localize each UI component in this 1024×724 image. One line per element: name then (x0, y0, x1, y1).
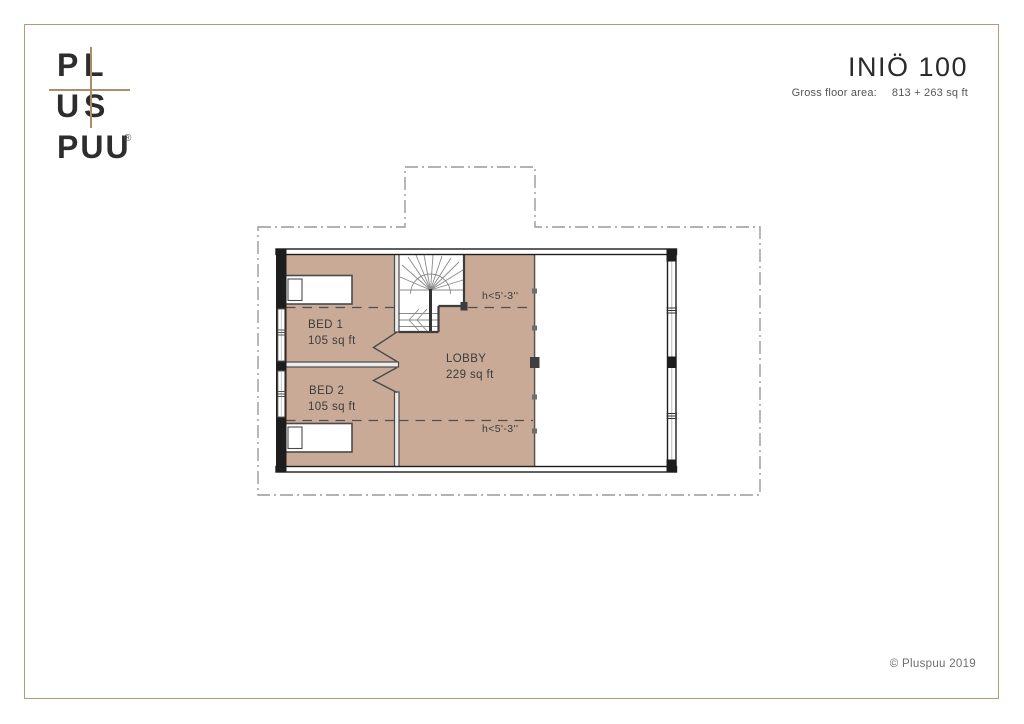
floor-plan-drawing (0, 0, 1024, 724)
page: P L U S PUU ® INIÖ 100 Gross floor area:… (0, 0, 1024, 724)
height-note-top: h<5'-3'' (482, 291, 518, 302)
bed2-icon (285, 424, 353, 453)
room-area-lobby: 229 sq ft (446, 370, 494, 382)
height-note-bottom: h<5'-3'' (482, 424, 518, 435)
room-label-bed2: BED 2 (309, 386, 344, 398)
room-area-bed2: 105 sq ft (308, 402, 356, 414)
room-label-bed1: BED 1 (308, 320, 343, 332)
copyright-text: © Pluspuu 2019 (890, 658, 976, 670)
bed1-icon (285, 276, 353, 305)
room-area-bed1: 105 sq ft (308, 336, 356, 348)
right-window-wall (667, 249, 678, 472)
room-label-lobby: LOBBY (446, 354, 486, 366)
